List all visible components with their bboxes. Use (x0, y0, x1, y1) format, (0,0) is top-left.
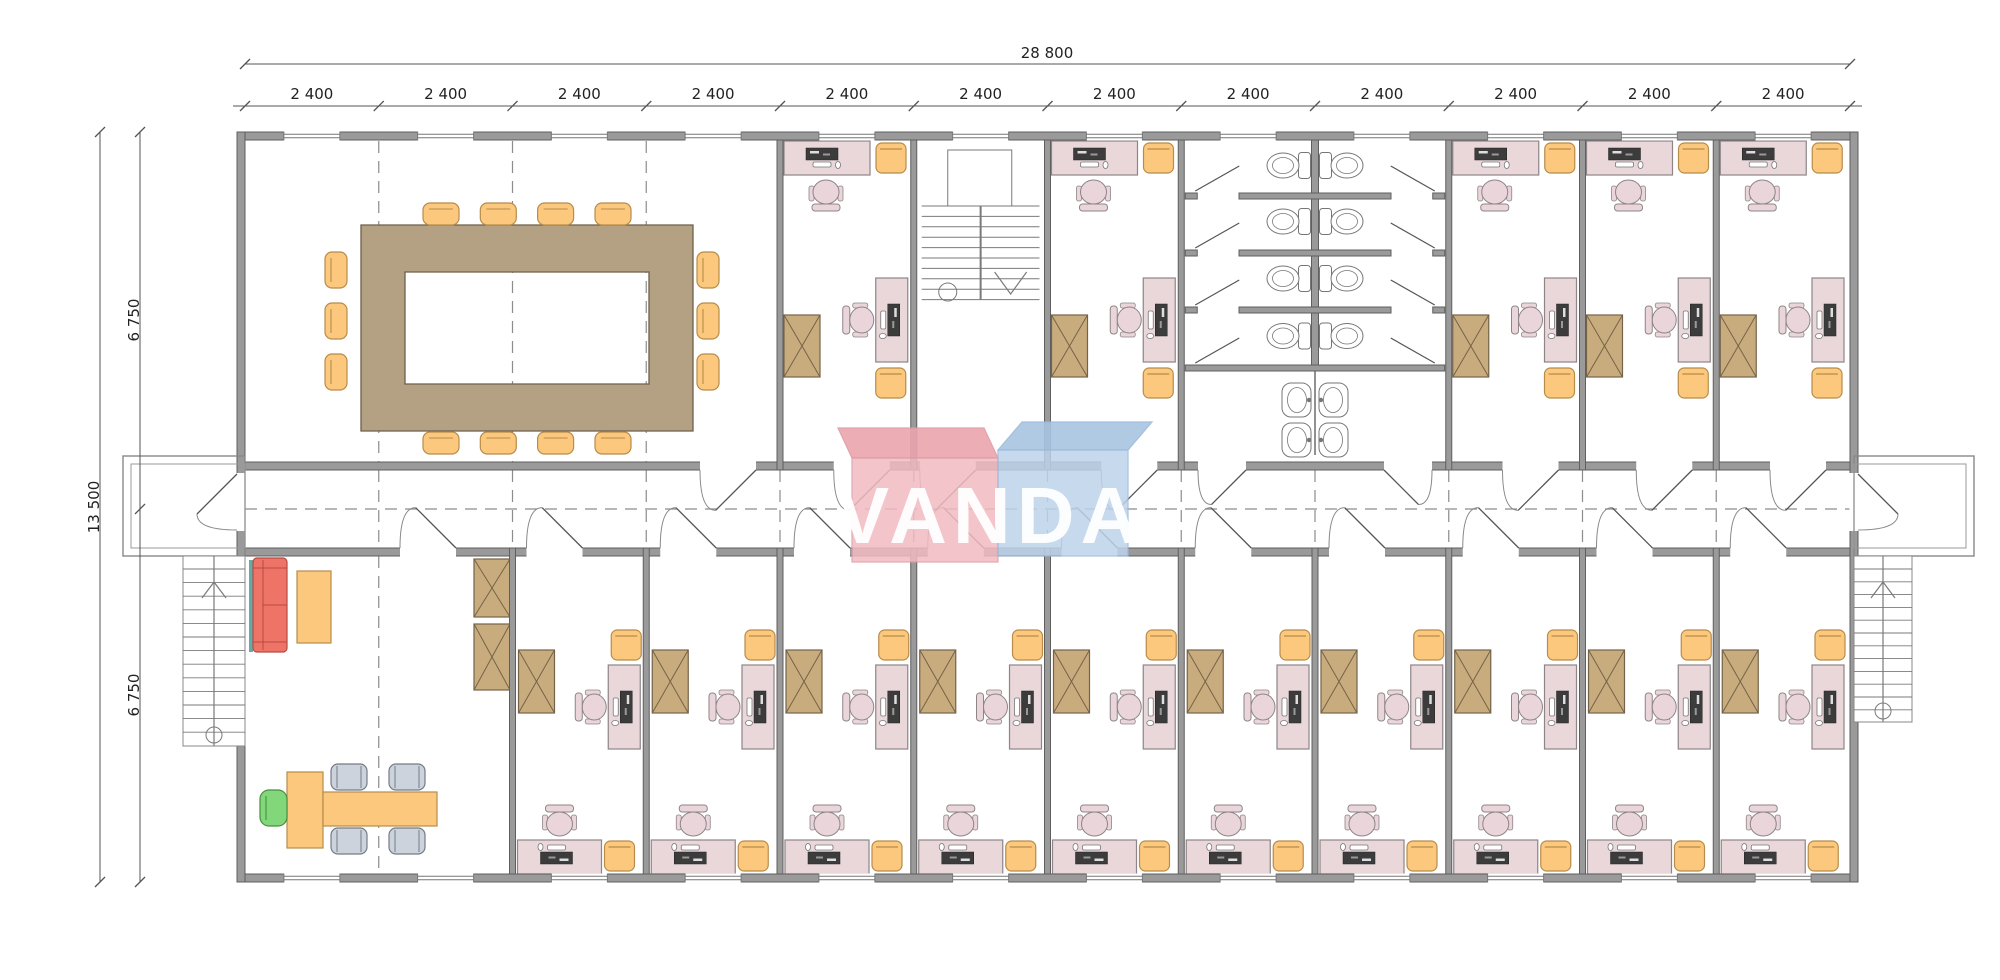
conference-chair (480, 203, 516, 225)
floor-plan: VANDA 28 800 13 500 6 750 6 750 2 4002 4… (0, 0, 2000, 980)
stall-door-leaf (1391, 223, 1435, 248)
conference-chair-seat (697, 252, 719, 288)
sink-tap (1319, 398, 1323, 402)
mouse (1474, 844, 1479, 851)
dimension-top-total-label: 28 800 (1021, 44, 1074, 62)
window (953, 132, 1009, 141)
screen-glyph (1829, 708, 1831, 715)
computer-screen (541, 852, 573, 864)
chair-seat (716, 694, 740, 720)
chair-seat (1519, 307, 1543, 333)
conference-chair (538, 432, 574, 454)
visitor-chair-seat (1545, 143, 1575, 173)
conference-chair-seat (325, 354, 347, 390)
coffee-table (297, 571, 331, 643)
logo-left-lid (838, 428, 998, 458)
chair-seat (850, 307, 874, 333)
window (685, 874, 741, 883)
task-chair (809, 180, 843, 211)
task-chair (1645, 690, 1676, 724)
door-swing-arc (1195, 508, 1211, 548)
task-chair (1779, 690, 1810, 724)
stall-door-leaf (1391, 280, 1435, 305)
vestibule-inner (1854, 464, 1966, 548)
task-chair (1779, 303, 1810, 337)
cabinet (1054, 650, 1090, 713)
task-chair (575, 690, 606, 724)
computer-screen (1690, 304, 1702, 336)
cabinet (1722, 650, 1758, 713)
screen-glyph (1362, 859, 1371, 862)
screen-glyph (816, 857, 823, 859)
visitor-chair-seat (1144, 143, 1174, 173)
mouse (1772, 162, 1777, 169)
chair-seat (1385, 694, 1409, 720)
window (1621, 874, 1677, 883)
door-leaf (197, 474, 237, 514)
visitor-chair (1675, 841, 1705, 871)
visitor-chair (1407, 841, 1437, 871)
keyboard (1550, 698, 1555, 716)
keyboard (881, 311, 886, 329)
visitor-chair (872, 841, 902, 871)
wall (911, 140, 917, 470)
chair-back (1081, 805, 1109, 812)
wall (1446, 548, 1452, 874)
visitor-chair (1414, 630, 1444, 660)
window (1755, 874, 1811, 883)
toilet (1267, 153, 1311, 179)
dimension-label: 2 400 (1762, 85, 1805, 103)
stair-direction-arrow (995, 272, 1027, 294)
screen-glyph (560, 859, 569, 862)
dimension-label: 2 400 (692, 85, 735, 103)
chair-seat (1482, 180, 1508, 204)
stall-door-leaf (1195, 280, 1239, 305)
task-chair (1211, 805, 1245, 836)
door-swing-arc (700, 470, 716, 510)
screen-glyph (827, 859, 836, 862)
chair-back (1645, 693, 1652, 721)
visitor-chair-seat (876, 368, 906, 398)
toilet (1267, 209, 1311, 235)
visitor-chair (1678, 368, 1708, 398)
screen-glyph (1619, 857, 1626, 859)
conference-chair (538, 203, 574, 225)
task-chair (977, 690, 1008, 724)
visitor-chair (1273, 841, 1303, 871)
task-chair (1244, 690, 1275, 724)
toilet-bowl (1331, 266, 1363, 291)
wall (1239, 250, 1391, 256)
chair-seat (850, 694, 874, 720)
door-swing-arc (1198, 470, 1211, 505)
conference-chair-seat (538, 432, 574, 454)
toilet (1320, 153, 1364, 179)
toilet-tank (1320, 153, 1332, 179)
visitor-chair-seat (1013, 630, 1043, 660)
chair-seat (1652, 307, 1676, 333)
stall-door-leaf (1195, 166, 1239, 191)
visitor-chair (1545, 368, 1575, 398)
door-swing-arc (1419, 470, 1432, 505)
chair-seat (1081, 180, 1107, 204)
floor-plan-page: VANDA 28 800 13 500 6 750 6 750 2 4002 4… (0, 0, 2000, 980)
screen-glyph (625, 708, 627, 715)
mouse (746, 721, 753, 726)
door-opening (527, 547, 583, 557)
screen-glyph (1427, 708, 1429, 715)
computer-screen (1343, 852, 1375, 864)
wall (510, 548, 516, 874)
wall (1178, 140, 1184, 470)
visitor-chair (611, 630, 641, 660)
wall (1446, 140, 1452, 470)
mouse (1504, 162, 1509, 169)
toilet (1320, 209, 1364, 235)
chair-back (1512, 306, 1519, 334)
chair-seat (1215, 812, 1241, 836)
wall (1045, 548, 1051, 874)
conference-chair-seat (325, 303, 347, 339)
visitor-chair (876, 368, 906, 398)
window (1220, 874, 1276, 883)
visitor-chair (1541, 841, 1571, 871)
door-swing-arc (1329, 508, 1345, 548)
task-chair (1345, 805, 1379, 836)
task-chair (543, 805, 577, 836)
conference-chair (595, 203, 631, 225)
chair-seat (1117, 694, 1141, 720)
visitor-chair-seat (1678, 368, 1708, 398)
window (1220, 132, 1276, 141)
window (1621, 132, 1677, 141)
visitor-chair-seat (611, 630, 641, 660)
computer-screen (1609, 148, 1641, 160)
visitor-chair-seat (1414, 630, 1444, 660)
toilet-bowl (1267, 266, 1299, 291)
computer-screen (942, 852, 974, 864)
chair-back (679, 805, 707, 812)
visitor-chair-seat (1143, 368, 1173, 398)
keyboard (1148, 698, 1153, 716)
visitor-chair-seat (1808, 841, 1838, 871)
vestibule (123, 456, 245, 556)
keyboard (681, 845, 699, 850)
visitor-chair-seat (1146, 630, 1176, 660)
window (685, 132, 741, 141)
door-leaf (1211, 470, 1246, 505)
wall (1239, 193, 1391, 199)
screen-glyph (1831, 308, 1834, 317)
cabinet (652, 650, 688, 713)
mouse (1816, 721, 1823, 726)
screen-glyph (1829, 321, 1831, 328)
wall (1433, 193, 1445, 199)
computer-screen (620, 691, 632, 723)
screen-glyph (892, 708, 894, 715)
conference-chair (325, 303, 347, 339)
cabinet (1187, 650, 1223, 713)
chair-seat (1749, 180, 1775, 204)
visitor-chair (1812, 143, 1842, 173)
chair-seat (1786, 694, 1810, 720)
stall-door-leaf (1391, 338, 1435, 363)
screen-glyph (1561, 321, 1563, 328)
logo-right-lid (998, 422, 1152, 450)
mouse (538, 844, 543, 851)
visitor-chair (745, 630, 775, 660)
visitor-chair (1545, 143, 1575, 173)
chair-seat (1117, 307, 1141, 333)
screen-glyph (1763, 859, 1772, 862)
mouse (1207, 844, 1212, 851)
visitor-chair (1146, 630, 1176, 660)
door-leaf (1858, 474, 1898, 514)
chair-back (1378, 693, 1385, 721)
toilet-bowl (1267, 153, 1299, 178)
conference-chair-seat (480, 432, 516, 454)
screen-glyph (1695, 321, 1697, 328)
green-armchair (260, 790, 287, 826)
screen-glyph (1091, 154, 1098, 156)
chair-seat (1483, 812, 1509, 836)
task-chair (676, 805, 710, 836)
door-opening (400, 547, 456, 557)
computer-screen (1289, 691, 1301, 723)
screen-glyph (1697, 695, 1700, 704)
screen-glyph (1028, 695, 1031, 704)
chair-back (575, 693, 582, 721)
computer-screen (1423, 691, 1435, 723)
keyboard (1350, 845, 1368, 850)
conference-chair (595, 432, 631, 454)
door-opening (1636, 461, 1692, 471)
computer-screen (1209, 852, 1241, 864)
wall (1185, 365, 1445, 371)
door-leaf (676, 508, 716, 548)
meeting-chair-seat (331, 764, 367, 790)
conference-chair (480, 432, 516, 454)
dimension-label: 2 400 (1494, 85, 1537, 103)
keyboard (1751, 845, 1769, 850)
chair-seat (1082, 812, 1108, 836)
door-leaf (1612, 508, 1652, 548)
chair-seat (984, 694, 1008, 720)
toilet (1320, 323, 1364, 349)
visitor-chair-seat (1681, 630, 1711, 660)
task-chair (1613, 805, 1647, 836)
conference-chair (423, 203, 459, 225)
screen-glyph (950, 857, 957, 859)
chair-back (1779, 693, 1786, 721)
door-opening (1384, 461, 1432, 471)
door-swing-arc (660, 508, 676, 548)
screen-glyph (1492, 154, 1499, 156)
door-opening (1503, 461, 1559, 471)
screen-glyph (1078, 151, 1087, 154)
keyboard (815, 845, 833, 850)
screen-glyph (894, 308, 897, 317)
visitor-chair-seat (605, 841, 635, 871)
computer-screen (1742, 148, 1774, 160)
sink-tap (1307, 398, 1311, 402)
door-leaf (1518, 470, 1558, 510)
chair-back (709, 693, 716, 721)
visitor-chair (1144, 143, 1174, 173)
toilet-tank (1320, 323, 1332, 349)
mouse (836, 162, 841, 169)
computer-screen (674, 852, 706, 864)
chair-back (1482, 805, 1510, 812)
cabinet (1321, 650, 1357, 713)
mouse (1548, 721, 1555, 726)
visitor-chair (1679, 143, 1709, 173)
screen-glyph (961, 859, 970, 862)
window (551, 874, 607, 883)
keyboard (1484, 845, 1502, 850)
task-chair (1645, 303, 1676, 337)
chair-back (977, 693, 984, 721)
visitor-chair (1143, 368, 1173, 398)
door-opening (660, 547, 716, 557)
computer-screen (1155, 304, 1167, 336)
meeting-chair (331, 764, 367, 790)
logo-text-layer: VANDA (836, 471, 1145, 560)
window (1086, 132, 1142, 141)
screen-glyph (1294, 708, 1296, 715)
visitor-chair-seat (879, 630, 909, 660)
computer-screen (1022, 691, 1034, 723)
computer-screen (808, 852, 840, 864)
keyboard (1550, 311, 1555, 329)
computer-screen (1557, 304, 1569, 336)
visitor-chair-seat (1407, 841, 1437, 871)
screen-glyph (1759, 154, 1766, 156)
sofa (253, 558, 287, 652)
keyboard (1282, 698, 1287, 716)
stall-door-leaf (1195, 223, 1239, 248)
cabinet (1589, 650, 1625, 713)
cabinet (1455, 650, 1491, 713)
dimension-label: 2 400 (558, 85, 601, 103)
door-swing-arc (794, 508, 810, 548)
toilet-bowl (1331, 153, 1363, 178)
window (418, 874, 474, 883)
screen-glyph (1429, 695, 1432, 704)
chair-seat (680, 812, 706, 836)
door-swing-arc (1730, 508, 1746, 548)
cabinet (1720, 315, 1756, 377)
window (551, 132, 607, 141)
task-chair (1378, 690, 1409, 724)
cabinet (1453, 315, 1489, 377)
wall (1580, 548, 1586, 874)
screen-glyph (693, 859, 702, 862)
screen-glyph (892, 321, 894, 328)
cabinet (920, 650, 956, 713)
keyboard (1618, 845, 1636, 850)
toilet (1267, 266, 1311, 292)
keyboard (1683, 698, 1688, 716)
wall (911, 548, 917, 874)
chair-back (1748, 204, 1776, 211)
mouse (1682, 334, 1689, 339)
wall (1185, 193, 1197, 199)
wall (643, 548, 649, 874)
computer-screen (888, 304, 900, 336)
screen-glyph (1746, 151, 1755, 154)
door-opening (1597, 547, 1653, 557)
task-chair (1110, 303, 1141, 337)
dimension-label: 2 400 (1360, 85, 1403, 103)
wall (1178, 548, 1184, 874)
task-chair (1478, 180, 1512, 211)
cabinet (1587, 315, 1623, 377)
door-leaf (1652, 470, 1692, 510)
cabinet (786, 650, 822, 713)
screen-glyph (1563, 695, 1566, 704)
window (284, 132, 340, 141)
sink (1282, 423, 1311, 457)
screen-glyph (682, 857, 689, 859)
logo-text: VANDA (836, 471, 1145, 560)
screen-glyph (627, 695, 630, 704)
chair-back (1615, 204, 1643, 211)
task-chair (810, 805, 844, 836)
mouse (1414, 721, 1421, 726)
visitor-chair (1548, 630, 1578, 660)
door-opening (1329, 547, 1385, 557)
visitor-chair-seat (1006, 841, 1036, 871)
toilet-bowl (1267, 324, 1299, 349)
wall (1580, 140, 1586, 470)
dimension-label: 2 400 (1227, 85, 1270, 103)
door-leaf (1746, 508, 1786, 548)
task-chair (1078, 805, 1112, 836)
screen-glyph (1160, 321, 1162, 328)
meeting-chair-seat (331, 828, 367, 854)
stair-landing (948, 150, 1012, 206)
visitor-chair (1812, 368, 1842, 398)
conference-chair-seat (697, 303, 719, 339)
exterior-stairs-left (183, 556, 245, 746)
window (819, 874, 875, 883)
keyboard (1482, 162, 1500, 167)
computer-screen (1155, 691, 1167, 723)
screen-glyph (1626, 154, 1633, 156)
window (1086, 874, 1142, 883)
window (1755, 132, 1811, 141)
keyboard (1749, 162, 1767, 167)
toilet-tank (1320, 266, 1332, 292)
visitor-chair-seat (1675, 841, 1705, 871)
conference-chair-seat (538, 203, 574, 225)
visitor-chair-seat (738, 841, 768, 871)
dimension-label: 2 400 (825, 85, 868, 103)
keyboard (1015, 698, 1020, 716)
dimension-label: 2 400 (290, 85, 333, 103)
meeting-chair-seat (389, 764, 425, 790)
computer-screen (1611, 852, 1643, 864)
visitor-chair-seat (1280, 630, 1310, 660)
door-swing-arc (1463, 508, 1479, 548)
sink (1282, 383, 1311, 417)
door-leaf (1786, 470, 1826, 510)
mouse (1147, 334, 1154, 339)
task-chair (944, 805, 978, 836)
door-swing-arc (400, 508, 416, 548)
